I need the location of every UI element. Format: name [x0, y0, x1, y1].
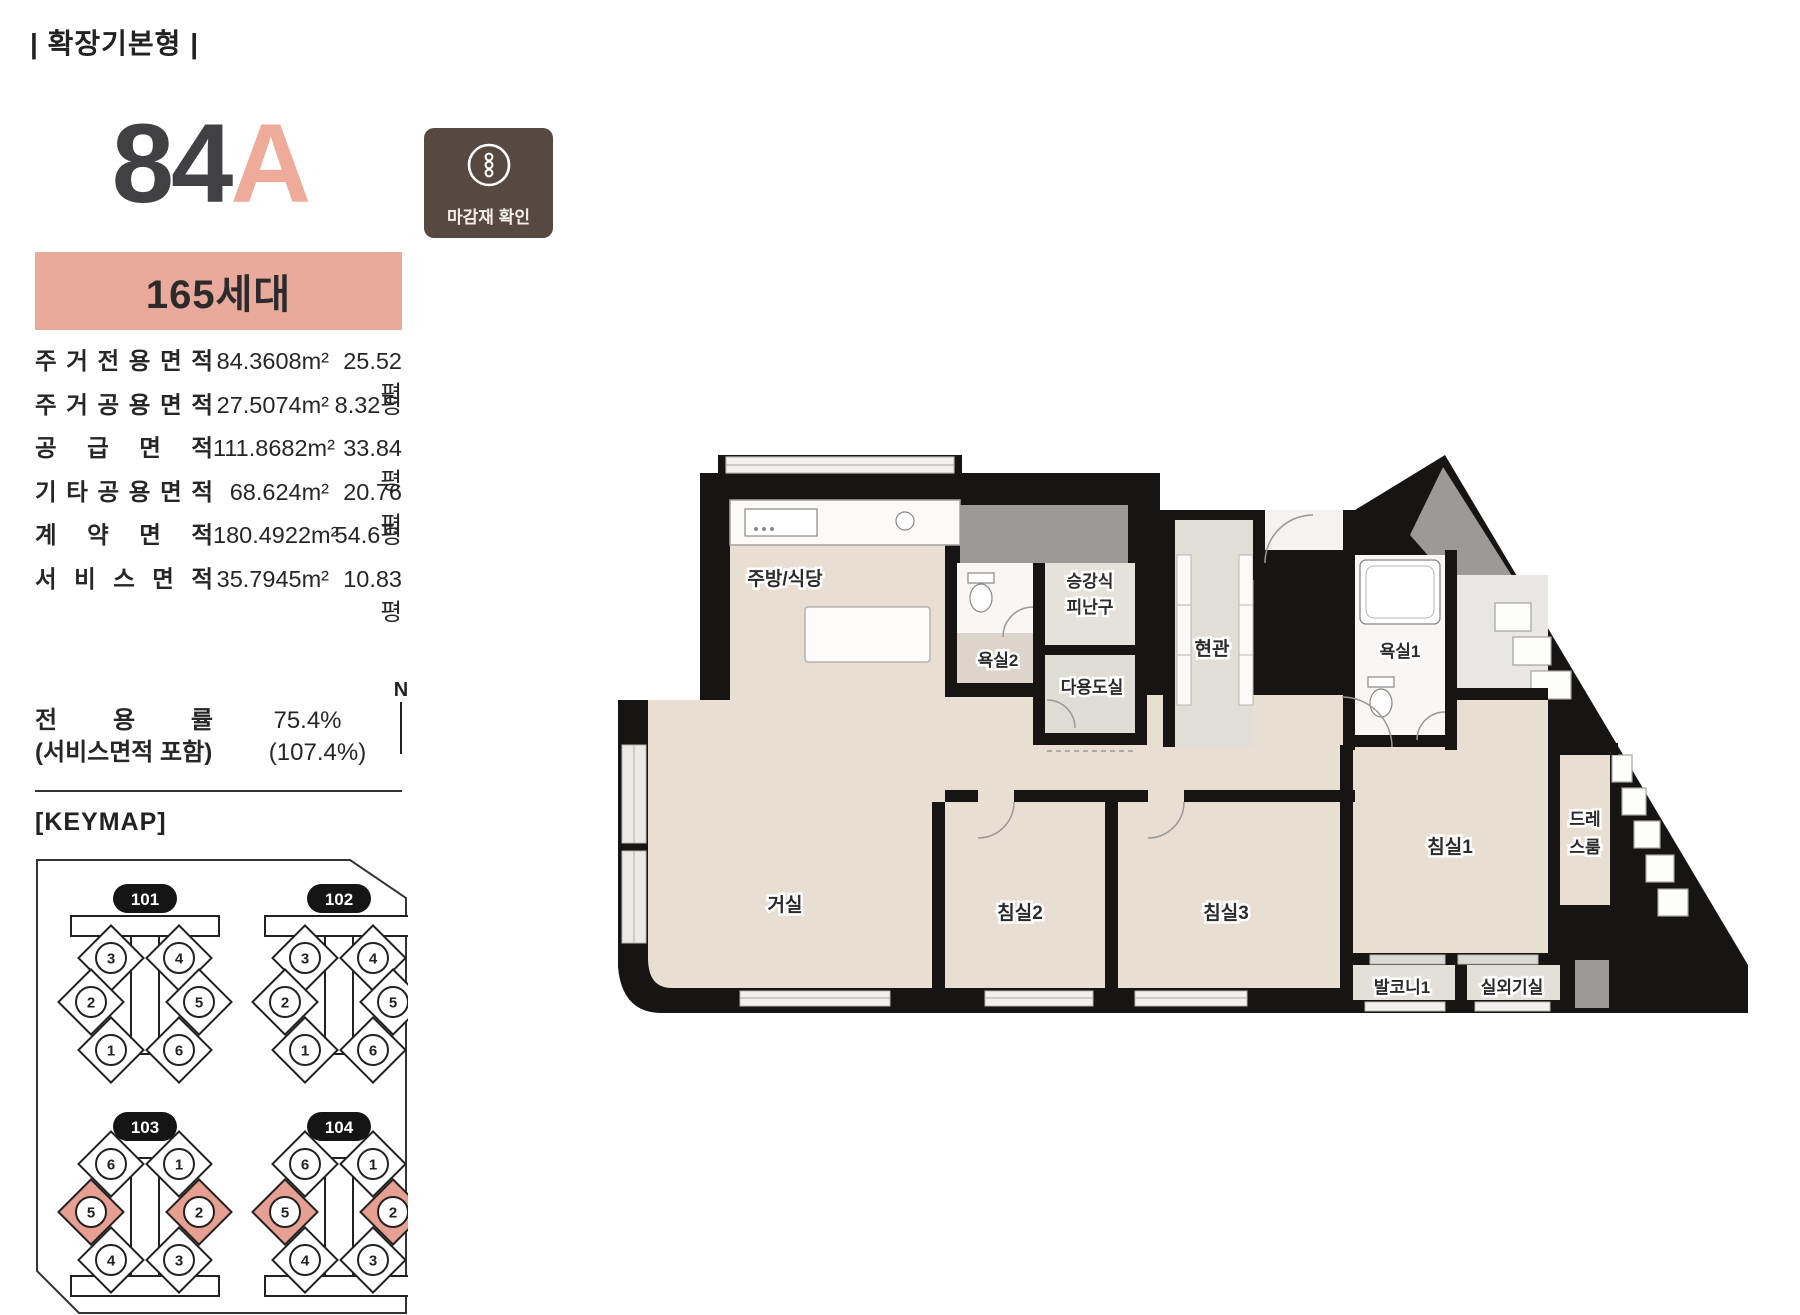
keymap-unit-number: 6	[369, 1043, 377, 1060]
floor-dressroom	[1560, 755, 1610, 910]
row-label: 주거전용면적	[35, 342, 213, 376]
finish-check-label: 마감재 확인	[447, 203, 530, 228]
room-label-kitchen: 주방/식당	[747, 568, 823, 590]
row-pyeong: 8.32평	[329, 386, 402, 420]
ratio-value: 75.4%	[213, 707, 402, 735]
kitchen-island	[805, 607, 930, 662]
table-row: 공급면적 111.8682m² 33.84평	[35, 429, 402, 473]
toilet-icon-bath2	[970, 584, 992, 612]
row-label: 공급면적	[35, 429, 213, 463]
row-m2: 84.3608m²	[213, 348, 329, 375]
toilet-icon-bath1	[1370, 689, 1392, 717]
keymap-unit-number: 1	[107, 1043, 115, 1060]
keymap-title: [KEYMAP]	[35, 808, 167, 837]
area-table: 주거전용면적 84.3608m² 25.52평 주거공용면적 27.5074m²…	[35, 342, 402, 603]
keymap-unit-number: 1	[175, 1157, 183, 1174]
table-row: 계약면적 180.4922m² 54.6평	[35, 516, 402, 560]
building-id-label: 102	[325, 890, 353, 909]
room-label-bed3: 침실3	[1203, 902, 1249, 924]
row-label: 계약면적	[35, 516, 213, 550]
room-label-bed2: 침실2	[997, 902, 1043, 924]
room-label-evac2: 피난구	[1067, 598, 1114, 617]
compass-needle	[400, 702, 402, 754]
unit-code: 84A	[0, 108, 420, 220]
keymap-unit-number: 4	[175, 951, 184, 968]
table-row: 기타공용면적 68.624m² 20.76평	[35, 473, 402, 517]
north-compass: N	[388, 680, 414, 754]
room-label-balcony1: 발코니1	[1374, 978, 1430, 997]
room-label-bath2: 욕실2	[978, 651, 1019, 670]
building-id-label: 103	[131, 1118, 159, 1137]
keymap-unit-number: 6	[175, 1043, 183, 1060]
keymap-unit-number: 2	[195, 1205, 203, 1222]
keymap-unit-number: 4	[369, 951, 378, 968]
keymap-unit-number: 1	[369, 1157, 377, 1174]
exclusive-ratio-block: 전용률 75.4% (서비스면적 포함) (107.4%)	[35, 700, 402, 764]
corner-shaft	[1575, 960, 1609, 1008]
keymap-unit-number: 3	[175, 1253, 183, 1270]
row-m2: 180.4922m²	[213, 522, 329, 549]
bathtub-icon	[1360, 560, 1440, 624]
keymap-unit-number: 6	[107, 1157, 115, 1174]
building-id-label: 104	[325, 1118, 354, 1137]
row-label: 서비스면적	[35, 560, 213, 594]
keymap-unit-number: 4	[107, 1253, 116, 1270]
room-label-dress1: 드레	[1569, 810, 1600, 829]
building-bar	[71, 916, 219, 936]
building-bar	[265, 916, 408, 936]
room-label-utility: 다용도실	[1061, 678, 1124, 697]
ratio-label: 전용률	[35, 700, 213, 735]
keymap-unit-number: 5	[281, 1205, 289, 1222]
row-pyeong: 54.6평	[329, 516, 402, 550]
floor-bedrooms	[945, 790, 1355, 988]
keymap: 342516101342516102615243103615243104	[35, 858, 408, 1315]
row-m2: 68.624m²	[213, 479, 329, 506]
shoe-cabinet-left	[1177, 555, 1191, 705]
keymap-unit-number: 1	[301, 1043, 309, 1060]
row-pyeong: 10.83평	[329, 566, 402, 627]
row-label: 주거공용면적	[35, 386, 213, 420]
compass-n-label: N	[388, 680, 414, 700]
plan-type-title: | 확장기본형 |	[30, 22, 199, 62]
table-row: 서비스면적 35.7945m² 10.83평	[35, 560, 402, 604]
keymap-unit-number: 6	[301, 1157, 309, 1174]
room-label-outdoor-unit: 실외기실	[1481, 978, 1544, 997]
keymap-unit-number: 5	[389, 995, 397, 1012]
keymap-unit-number: 5	[87, 1205, 95, 1222]
cooktop-icon	[745, 509, 817, 536]
table-row: 주거공용면적 27.5074m² 8.32평	[35, 386, 402, 430]
ratio-sub-value: (107.4%)	[233, 739, 402, 767]
keymap-unit-number: 3	[107, 951, 115, 968]
keymap-unit-number: 2	[281, 995, 289, 1012]
keymap-unit-number: 2	[389, 1205, 397, 1222]
households-label: 165세대	[146, 262, 291, 320]
floor-living	[648, 700, 955, 988]
keymap-unit-number: 3	[301, 951, 309, 968]
row-m2: 27.5074m²	[213, 392, 329, 419]
finish-check-icon	[466, 142, 512, 188]
room-label-bath1: 욕실1	[1380, 642, 1421, 661]
households-banner: 165세대	[35, 252, 402, 330]
row-label: 기타공용면적	[35, 473, 213, 507]
shaft-void	[960, 505, 1128, 563]
floor-hall	[945, 695, 1355, 790]
unit-number: 84	[112, 101, 231, 226]
floorplan: 주방/식당 욕실2 승강식 피난구 다용도실 현관 욕실1 거실 침실2 침실3…	[600, 455, 1750, 1015]
room-label-entry: 현관	[1195, 638, 1230, 660]
row-m2: 35.7945m²	[213, 566, 329, 593]
keymap-unit-number: 2	[87, 995, 95, 1012]
room-label-living: 거실	[768, 894, 803, 916]
finish-check-button[interactable]: 마감재 확인	[424, 128, 553, 238]
shoe-cabinet-right	[1239, 555, 1253, 705]
building-id-label: 101	[131, 890, 159, 909]
keymap-unit-number: 4	[301, 1253, 310, 1270]
unit-letter: A	[230, 101, 308, 226]
keymap-unit-number: 5	[195, 995, 203, 1012]
building-bar	[71, 1276, 219, 1296]
room-label-evac1: 승강식	[1067, 572, 1114, 591]
row-m2: 111.8682m²	[213, 435, 329, 462]
keymap-unit-number: 3	[369, 1253, 377, 1270]
sink-icon	[896, 512, 914, 530]
room-label-dress2: 스룸	[1569, 838, 1601, 857]
room-label-bed1: 침실1	[1427, 836, 1473, 858]
table-row: 주거전용면적 84.3608m² 25.52평	[35, 342, 402, 386]
section-divider	[35, 790, 402, 792]
ratio-sub-label: (서비스면적 포함)	[35, 732, 233, 767]
